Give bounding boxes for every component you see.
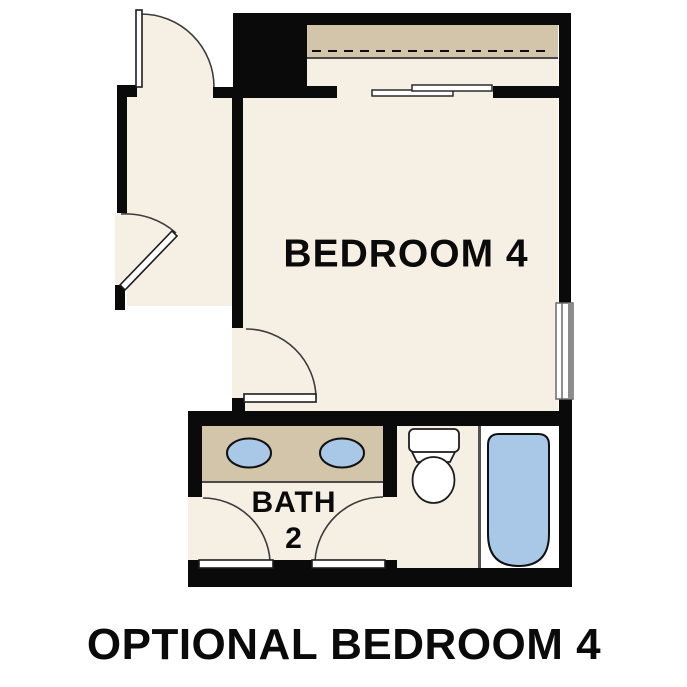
swing-door-left-icon	[120, 214, 177, 290]
swing-door-bedroom-icon	[244, 329, 316, 402]
bathtub-icon	[488, 434, 549, 566]
plan-symbols	[0, 0, 687, 687]
floor-plan: BEDROOM 4 BATH 2 OPTIONAL BEDROOM 4	[0, 0, 687, 687]
sink-basin-right-icon	[320, 439, 364, 468]
plan-caption: OPTIONAL BEDROOM 4	[87, 623, 601, 667]
swing-door-top-icon	[136, 10, 214, 87]
bath-label-line1: BATH	[251, 488, 336, 518]
sink-basin-left-icon	[227, 439, 271, 468]
bedroom-label: BEDROOM 4	[283, 235, 528, 274]
bath-label-line2: 2	[285, 524, 303, 554]
window-icon	[556, 303, 573, 399]
sliding-closet-doors-icon	[372, 85, 492, 96]
toilet-icon	[409, 429, 459, 503]
